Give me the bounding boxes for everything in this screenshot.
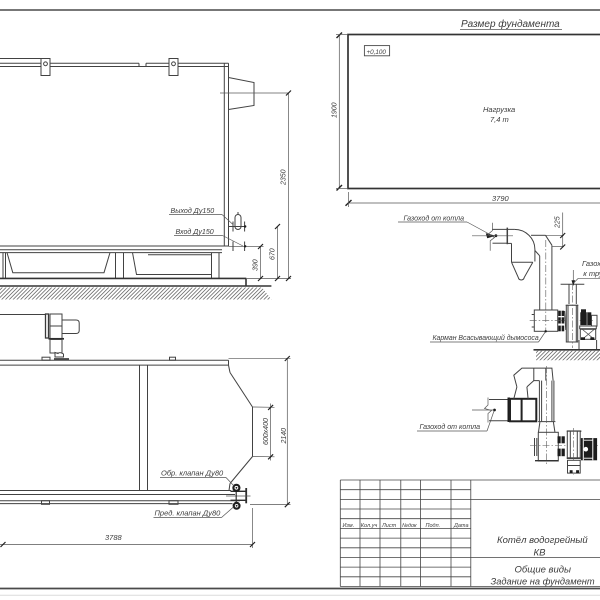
svg-text:Газоход от котла: Газоход от котла — [420, 423, 481, 431]
svg-text:2140: 2140 — [281, 428, 288, 445]
svg-text:Задание на фундамент: Задание на фундамент — [491, 577, 595, 587]
svg-text:Вход Ду150: Вход Ду150 — [176, 228, 214, 236]
svg-text:Газоход от котла: Газоход от котла — [404, 215, 465, 223]
svg-text:Подп.: Подп. — [426, 523, 441, 529]
svg-text:Газохо: Газохо — [582, 259, 600, 268]
svg-text:Нагрузка: Нагрузка — [483, 105, 515, 114]
svg-text:7,4 т: 7,4 т — [490, 115, 509, 124]
svg-text:к труб: к труб — [583, 269, 600, 278]
svg-text:670: 670 — [270, 248, 277, 260]
svg-text:Выход Ду150: Выход Ду150 — [171, 207, 215, 215]
svg-text:Пред. клапан Ду80: Пред. клапан Ду80 — [155, 509, 222, 518]
svg-text:1900: 1900 — [332, 102, 339, 118]
svg-text:390: 390 — [253, 259, 260, 271]
svg-text:Лист: Лист — [381, 523, 397, 529]
svg-text:2350: 2350 — [281, 169, 288, 186]
svg-text:№док: №док — [402, 523, 417, 529]
svg-text:Дата: Дата — [453, 523, 469, 529]
svg-text:Размер фундамента: Размер фундамента — [461, 18, 560, 30]
svg-text:225: 225 — [555, 216, 562, 229]
svg-text:КВ: КВ — [534, 548, 547, 559]
svg-text:Карман Всасывающий дымососа: Карман Всасывающий дымососа — [433, 334, 539, 342]
svg-text:Кол.уч: Кол.уч — [361, 523, 378, 529]
svg-text:+0,100: +0,100 — [367, 49, 387, 56]
svg-text:Обр. клапан Ду80: Обр. клапан Ду80 — [161, 469, 224, 478]
svg-text:3788: 3788 — [105, 533, 123, 542]
svg-text:600x400: 600x400 — [263, 418, 270, 445]
svg-text:3790: 3790 — [492, 194, 510, 203]
svg-text:Изм.: Изм. — [343, 523, 355, 529]
svg-text:Котёл водогрейный: Котёл водогрейный — [497, 535, 588, 546]
svg-text:Общие виды: Общие виды — [515, 565, 572, 576]
